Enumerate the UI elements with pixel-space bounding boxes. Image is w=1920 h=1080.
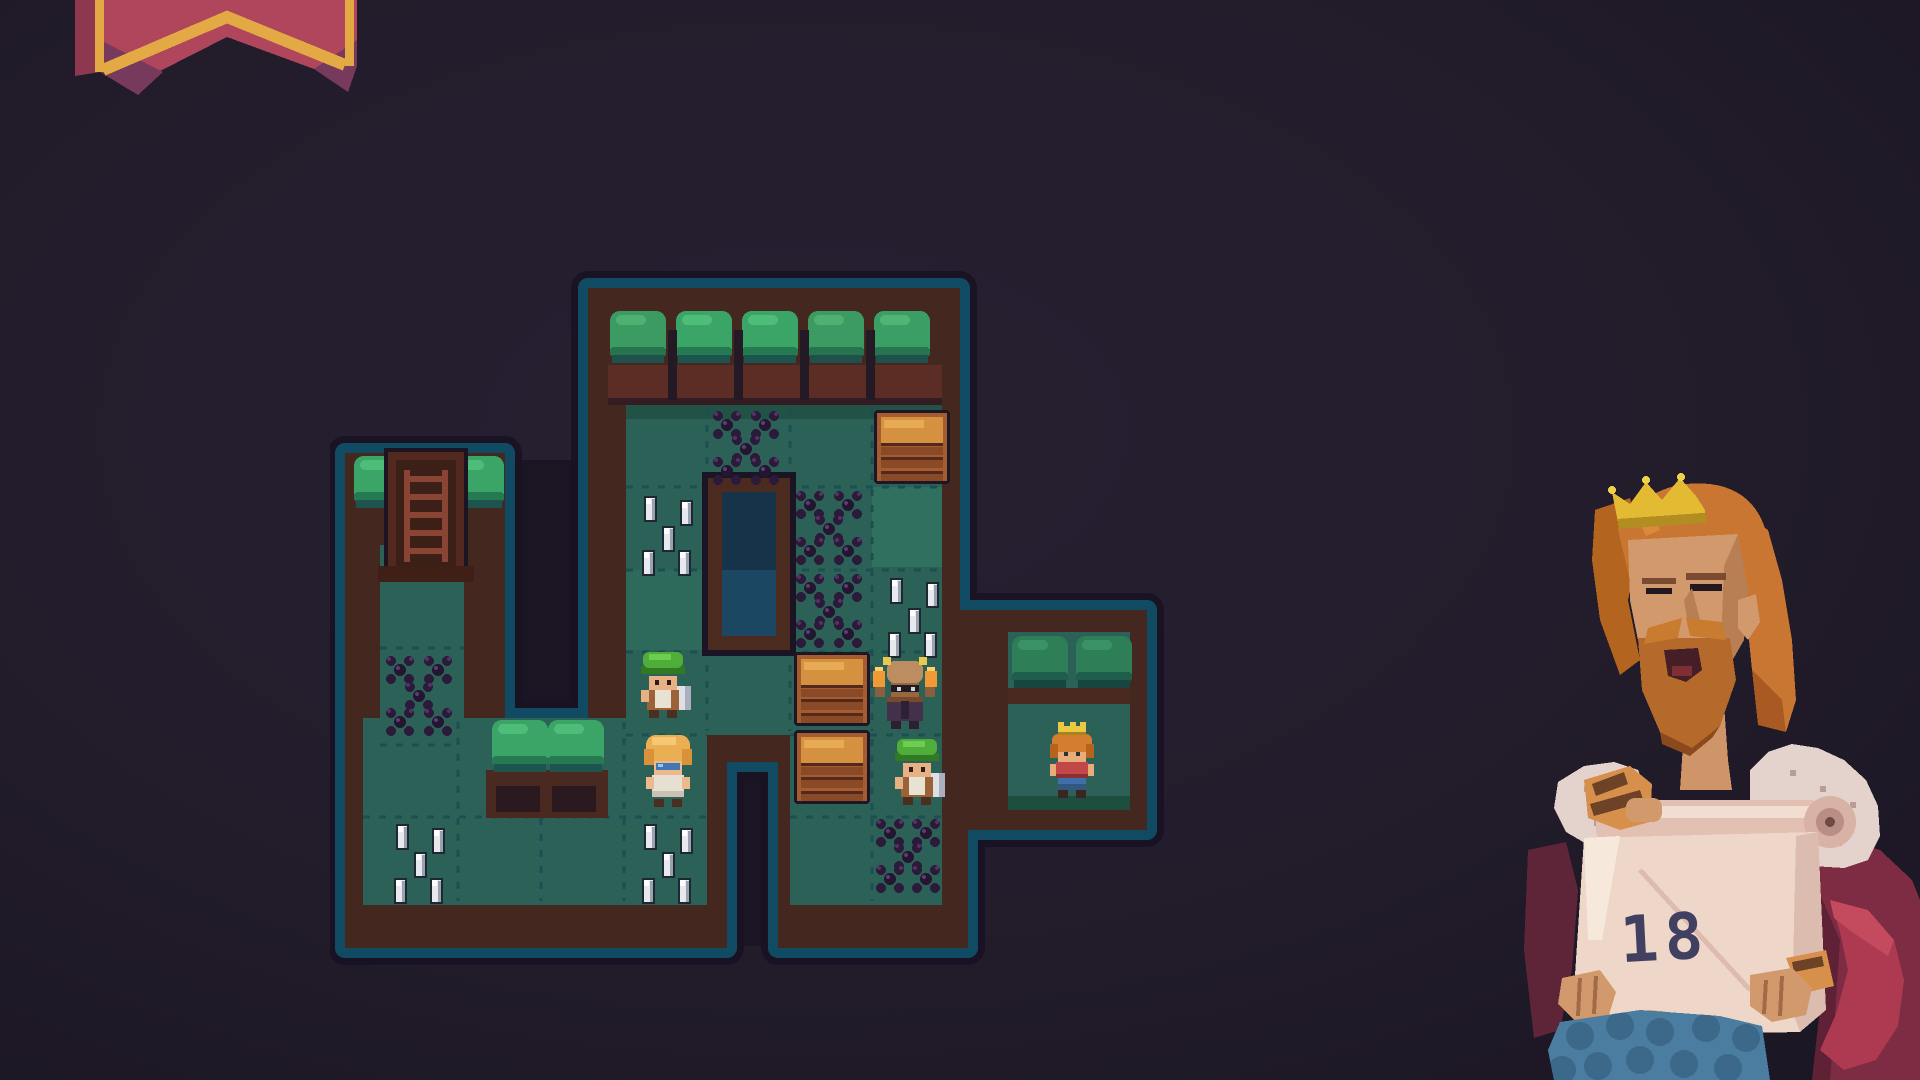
pit [702,472,796,656]
hedge-wall-top [608,311,942,405]
puzzle-board[interactable] [330,270,1180,980]
crate[interactable] [874,410,950,484]
crate[interactable] [794,652,870,726]
king-crown [1608,473,1706,529]
banner-pennant [60,0,380,120]
king-portrait: 18 [1500,470,1920,1080]
king-skirt [1548,1010,1770,1080]
crate[interactable] [794,730,870,804]
level-number: 18 [1618,899,1711,978]
